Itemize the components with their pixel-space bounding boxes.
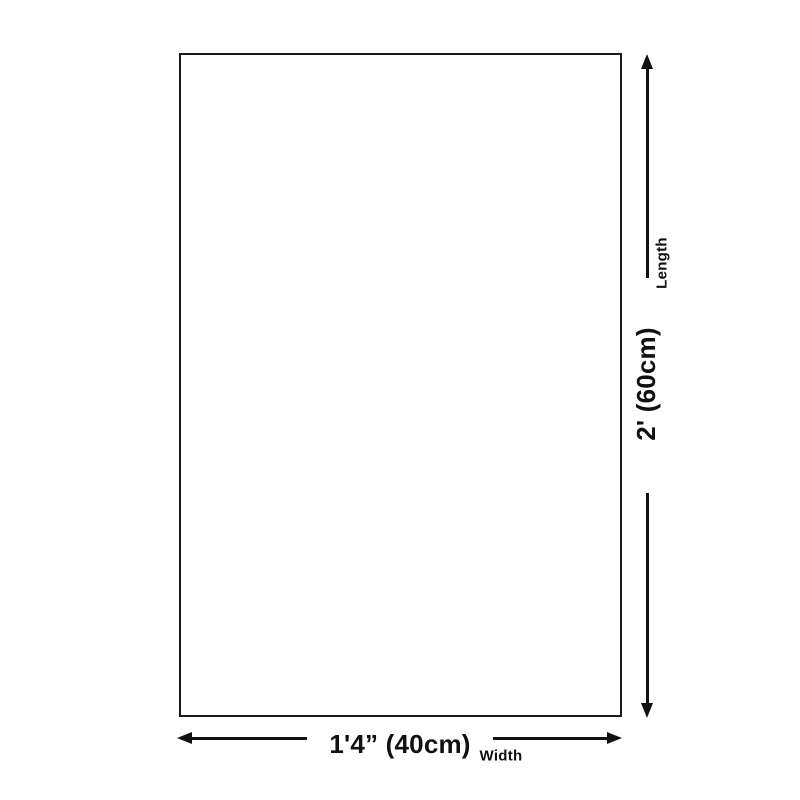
length-label: Length — [655, 237, 670, 289]
product-dimension-diagram: Length 2' (60cm) 1'4” (40cm) Width — [0, 0, 800, 800]
length-dimension-line-lower — [646, 493, 649, 704]
width-label: Width — [479, 749, 522, 764]
arrow-left-icon — [177, 732, 192, 744]
arrow-right-icon — [607, 732, 622, 744]
arrow-down-icon — [641, 703, 653, 718]
product-outline — [179, 53, 622, 717]
width-dimension-line-right — [493, 737, 607, 740]
length-dimension-line-upper — [646, 67, 649, 278]
length-value: 2' (60cm) — [633, 327, 659, 440]
width-value: 1'4” (40cm) — [329, 731, 470, 757]
width-dimension-line-left — [191, 737, 307, 740]
